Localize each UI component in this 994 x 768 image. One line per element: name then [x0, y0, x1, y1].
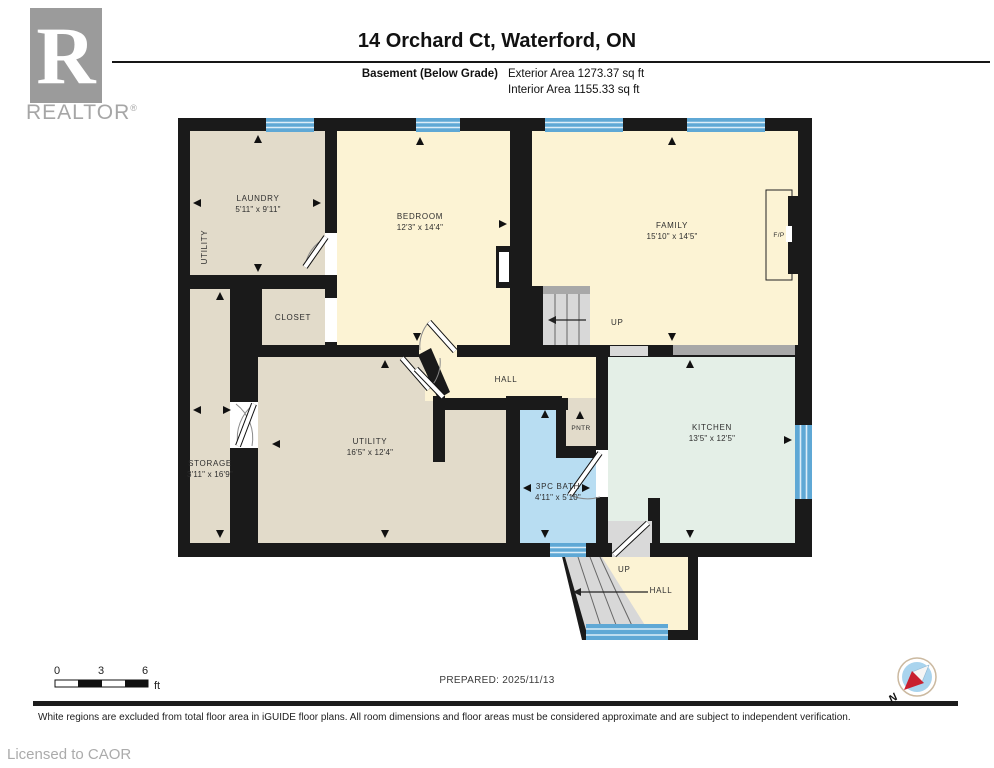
window-bath	[550, 543, 586, 557]
fireplace-label: F/P	[773, 232, 784, 239]
window-laundry	[266, 118, 314, 132]
bedroom-floor	[337, 131, 510, 345]
window-hall-lower	[586, 624, 668, 640]
storage-label: STORAGE	[188, 459, 232, 468]
laundry-dims: 5'11" x 9'11"	[235, 205, 280, 214]
pantry-label: PNTR	[571, 425, 590, 432]
family-label: FAMILY	[656, 221, 688, 230]
prepared-date: PREPARED: 2025/11/13	[0, 675, 994, 686]
bedroom-label: BEDROOM	[397, 212, 443, 221]
pantry-floor	[566, 398, 596, 446]
window-family-left	[545, 118, 623, 132]
utility-nook-label: UTILITY	[200, 230, 209, 265]
window-bedroom	[416, 118, 460, 132]
up-main-label: UP	[611, 318, 624, 327]
fireplace	[766, 190, 804, 280]
bath-label: 3PC BATH	[536, 482, 580, 491]
up-lower-label: UP	[618, 565, 631, 574]
disclaimer-text: White regions are excluded from total fl…	[38, 712, 851, 723]
hall-label: HALL	[495, 375, 518, 384]
kitchen-floor	[608, 357, 795, 543]
closet-label: CLOSET	[275, 313, 311, 322]
utility-label: UTILITY	[353, 437, 388, 446]
storage-dims: 3'11" x 16'9"	[187, 470, 233, 479]
window-kitchen	[795, 425, 812, 499]
storage-floor	[190, 289, 230, 543]
utility-dims: 16'5" x 12'4"	[347, 448, 393, 457]
stairs-main	[543, 286, 590, 345]
hall-lower-label: HALL	[650, 586, 673, 595]
license-text: Licensed to CAOR	[7, 746, 131, 763]
footer-divider	[33, 701, 958, 706]
laundry-floor	[190, 131, 325, 277]
floorplan-page: R REALTOR® 14 Orchard Ct, Waterford, ON …	[0, 0, 994, 768]
floorplan-drawing: LAUNDRY 5'11" x 9'11" UTILITY BEDROOM 12…	[0, 0, 994, 768]
laundry-label: LAUNDRY	[237, 194, 280, 203]
family-dims: 15'10" x 14'5"	[646, 232, 697, 241]
kitchen-dims: 13'5" x 12'5"	[689, 434, 735, 443]
bath-dims: 4'11" x 5'10"	[535, 493, 581, 502]
window-family-right	[687, 118, 765, 132]
bedroom-dims: 12'3" x 14'4"	[397, 223, 443, 232]
kitchen-label: KITCHEN	[692, 423, 732, 432]
